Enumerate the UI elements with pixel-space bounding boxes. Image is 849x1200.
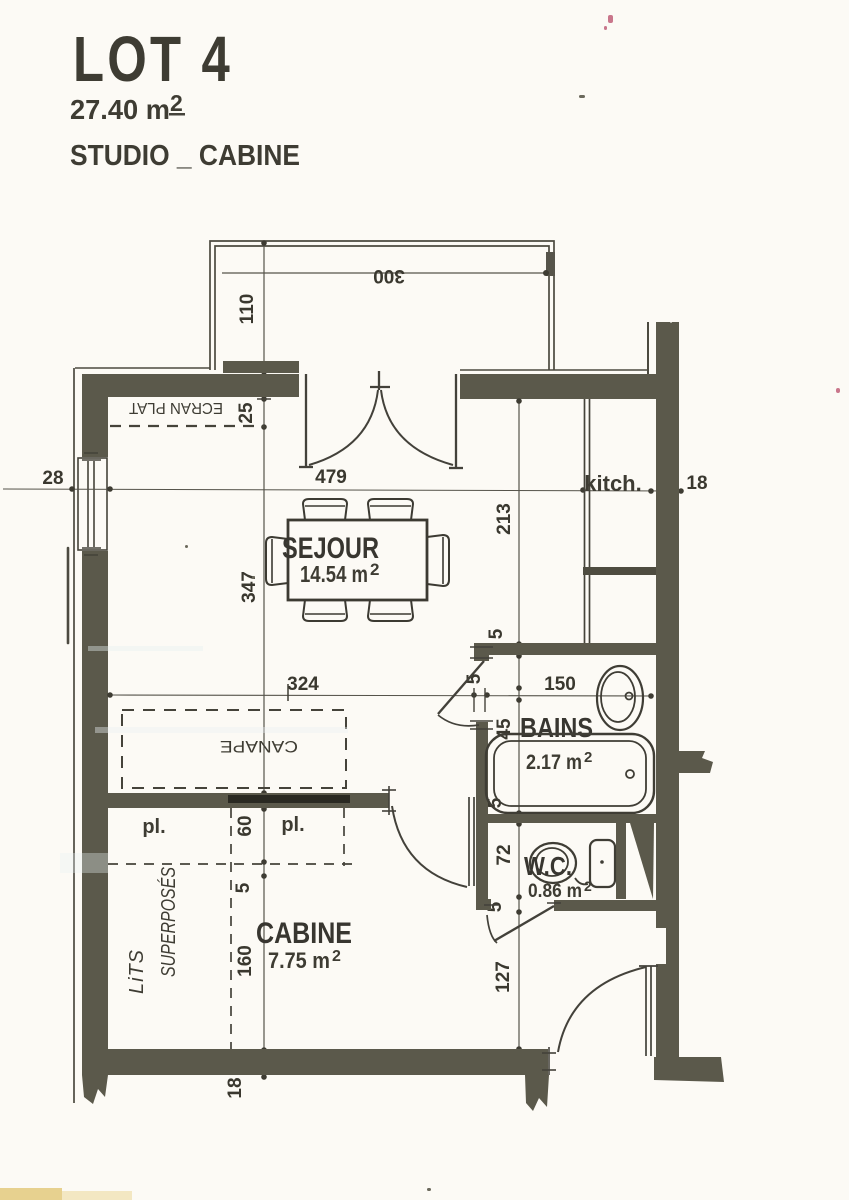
svg-text:28: 28 [42, 468, 63, 489]
svg-text:LiTS: LiTS [126, 949, 148, 994]
svg-text:7.75 m: 7.75 m [268, 948, 330, 973]
svg-text:347: 347 [239, 571, 260, 603]
svg-text:pl.: pl. [142, 816, 165, 838]
svg-text:324: 324 [287, 674, 319, 695]
svg-text:SUPERPOSÉS: SUPERPOSÉS [157, 866, 180, 977]
svg-text:2: 2 [332, 948, 341, 965]
svg-text:127: 127 [493, 961, 514, 993]
svg-text:479: 479 [315, 467, 347, 488]
svg-text:CABINE: CABINE [256, 917, 352, 950]
svg-text:150: 150 [544, 674, 576, 695]
svg-text:0.86 m: 0.86 m [528, 881, 582, 902]
svg-text:5: 5 [233, 882, 254, 893]
svg-text:W.C.: W.C. [524, 851, 572, 881]
svg-text:2: 2 [170, 90, 183, 116]
svg-text:27.40 m: 27.40 m [70, 94, 170, 125]
svg-text:BAINS: BAINS [520, 712, 593, 743]
svg-text:5: 5 [486, 628, 507, 639]
svg-text:18: 18 [225, 1077, 246, 1098]
svg-text:LOT 4: LOT 4 [73, 23, 233, 95]
svg-text:18: 18 [686, 473, 707, 494]
svg-text:14.54 m: 14.54 m [300, 561, 368, 587]
svg-text:STUDIO _ CABINE: STUDIO _ CABINE [70, 140, 300, 172]
svg-text:2: 2 [584, 749, 592, 766]
svg-text:160: 160 [235, 945, 256, 977]
svg-text:2: 2 [370, 560, 379, 579]
svg-text:300: 300 [373, 265, 405, 286]
svg-text:2: 2 [584, 878, 592, 894]
svg-text:pl.: pl. [281, 814, 304, 836]
svg-text:kitch.: kitch. [584, 471, 641, 496]
svg-text:ECRAN PLAT: ECRAN PLAT [129, 399, 223, 416]
svg-text:60: 60 [235, 815, 256, 836]
svg-text:CANAPE: CANAPE [220, 737, 298, 756]
svg-text:25: 25 [236, 402, 257, 424]
svg-text:2.17 m: 2.17 m [526, 751, 582, 774]
svg-text:72: 72 [494, 844, 515, 865]
svg-text:213: 213 [494, 503, 515, 535]
svg-text:110: 110 [237, 294, 258, 325]
